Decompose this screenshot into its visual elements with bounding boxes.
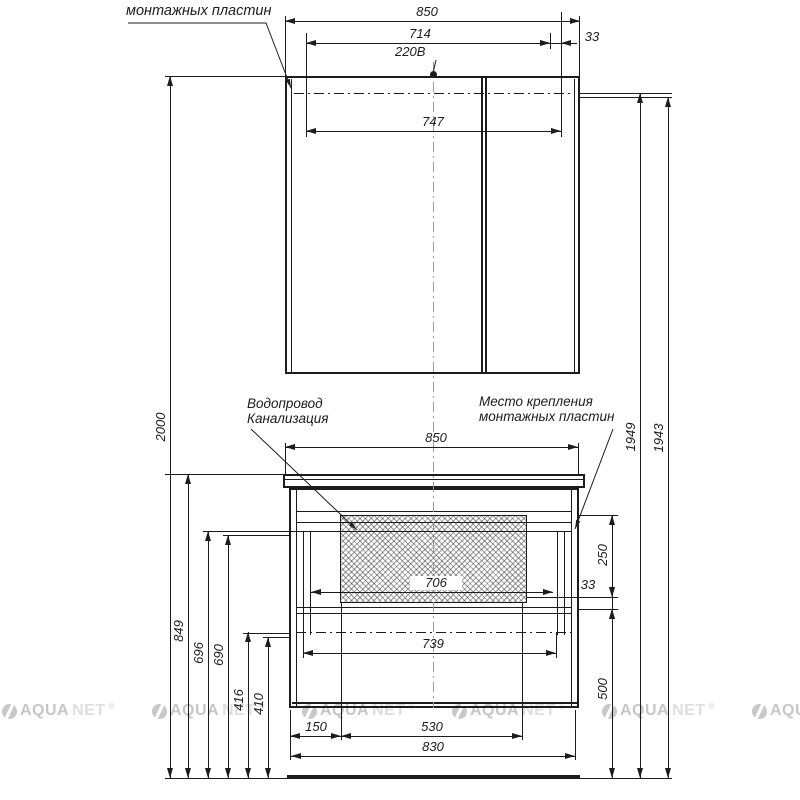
dimension-arrow [306, 40, 316, 46]
dimension-arrow [512, 733, 522, 739]
dimension-arrow [665, 97, 671, 107]
dimension-arrow [291, 753, 301, 759]
dimension-arrow [225, 768, 231, 778]
callout-plumbing-line1: Водопровод [247, 396, 328, 411]
dimension-arrow [205, 531, 211, 541]
dimension-arrow [540, 40, 550, 46]
callout-plumbing-line2: Канализация [247, 411, 328, 426]
dimension-height_410: 410 [252, 680, 266, 728]
dimension-arrow [167, 768, 173, 778]
dimension-cutout_250: 250 [596, 531, 610, 579]
dimension-arrow [245, 768, 251, 778]
dimension-arrow [245, 632, 251, 642]
dimension-rail_33: 33 [574, 578, 602, 592]
dimension-mirror_width: 850 [403, 5, 451, 19]
dimension-mirror_33: 33 [578, 30, 606, 44]
dimension-height_1943: 1943 [652, 414, 666, 462]
dimension-height_2000: 2000 [154, 403, 168, 451]
dimension-arrow [546, 650, 556, 656]
dimension-arrow [225, 535, 231, 545]
dimension-arrow [637, 768, 643, 778]
dimension-arrow [185, 768, 191, 778]
callout-mounting-place: Место крепления монтажных пластин [479, 394, 614, 424]
technical-drawing-canvas: AQUANET®AQUANET®AQUANET®AQUANET®AQUANET®… [0, 0, 800, 800]
dimension-height_690: 690 [212, 631, 226, 679]
dimension-arrow [637, 93, 643, 103]
dimension-arrow [665, 768, 671, 778]
dimension-vanity_width: 850 [412, 431, 460, 445]
dimension-arrow [265, 768, 271, 778]
dimension-height_696: 696 [192, 629, 206, 677]
dimension-arrow [167, 76, 173, 86]
dimension-arrow [285, 18, 295, 24]
leader-lines [0, 0, 800, 800]
dimension-arrow [311, 589, 321, 595]
dimension-arrow [185, 474, 191, 484]
dimension-height_1949: 1949 [624, 413, 638, 461]
dimension-arrow [565, 753, 575, 759]
dimension-arrow [551, 128, 561, 134]
dimension-mirror_747: 747 [409, 115, 457, 129]
dimension-offset_150: 150 [292, 720, 340, 734]
dimension-height_416: 416 [232, 676, 246, 724]
dimension-vanity_830: 830 [409, 740, 457, 754]
dimension-cutout_530: 530 [408, 720, 456, 734]
dimension-arrow [609, 768, 615, 778]
dimension-cutout_706: 706 [410, 576, 462, 590]
dimension-drawer_739: 739 [409, 637, 457, 651]
outlet-label: 220В [395, 44, 425, 59]
dimension-arrow [306, 128, 316, 134]
dimension-mirror_714: 714 [396, 27, 444, 41]
outlet-dot [430, 71, 437, 78]
dimension-arrow [341, 733, 351, 739]
dimension-arrow [265, 637, 271, 647]
dimension-height_849: 849 [172, 607, 186, 655]
dimension-arrow [570, 18, 580, 24]
dimension-arrow [609, 515, 615, 525]
dimension-arrow [609, 609, 615, 619]
dimension-arrow [285, 444, 295, 450]
dimension-bottom_500: 500 [596, 665, 610, 713]
callout-plumbing: Водопровод Канализация [247, 396, 328, 426]
dimension-arrow [543, 589, 553, 595]
dimension-arrow [609, 587, 615, 597]
callout-mounting-line1: Место крепления [479, 394, 614, 409]
callout-mounting-line2: монтажных пластин [479, 409, 614, 424]
dimension-arrow [561, 40, 571, 46]
callout-mounting-plates-top: монтажных пластин [126, 4, 271, 19]
dimension-arrow [568, 444, 578, 450]
dimension-arrow [303, 650, 313, 656]
dimension-arrow [205, 768, 211, 778]
